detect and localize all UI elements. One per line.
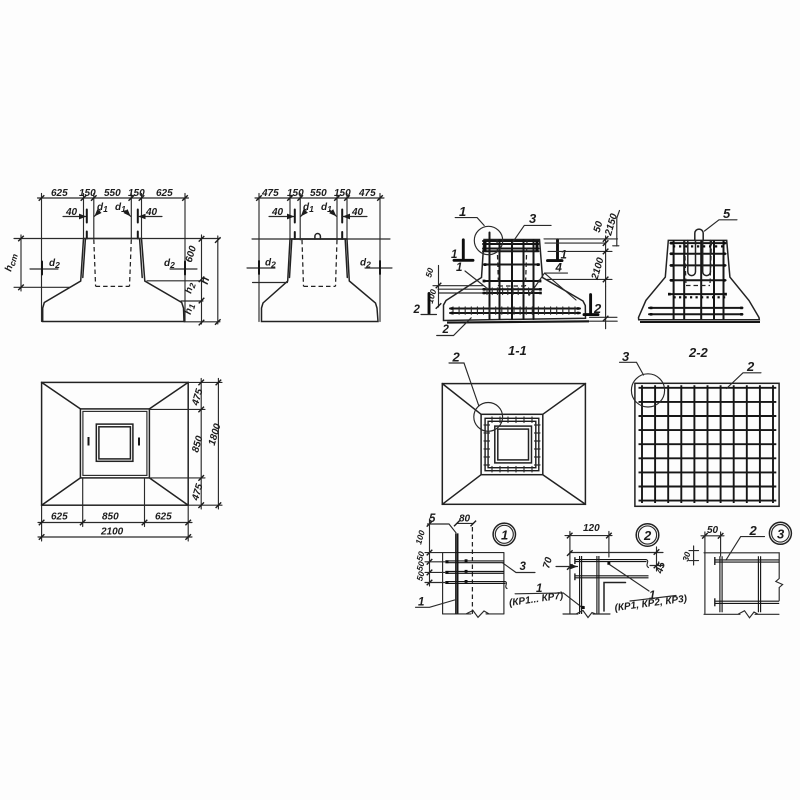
svg-text:550: 550 <box>310 188 327 199</box>
svg-text:2: 2 <box>452 350 461 365</box>
svg-text:50: 50 <box>423 266 435 278</box>
svg-text:4: 4 <box>555 262 563 274</box>
svg-text:1: 1 <box>418 597 424 609</box>
svg-text:625: 625 <box>155 512 172 523</box>
svg-text:d1: d1 <box>321 202 332 214</box>
svg-text:600: 600 <box>184 244 199 263</box>
svg-text:3: 3 <box>777 527 785 542</box>
svg-text:1: 1 <box>451 249 457 261</box>
svg-text:2: 2 <box>442 324 450 336</box>
svg-text:2: 2 <box>413 304 421 316</box>
svg-text:1800: 1800 <box>207 422 224 447</box>
svg-text:475: 475 <box>261 188 279 199</box>
svg-text:hст: hст <box>3 252 20 273</box>
svg-text:150: 150 <box>79 188 96 199</box>
svg-text:625: 625 <box>51 188 68 199</box>
svg-text:1: 1 <box>459 204 466 219</box>
svg-text:5: 5 <box>429 513 436 525</box>
svg-text:5: 5 <box>723 206 731 221</box>
svg-text:d1: d1 <box>115 202 126 214</box>
svg-text:1-1: 1-1 <box>508 343 527 358</box>
svg-text:d2: d2 <box>164 258 175 270</box>
svg-text:850: 850 <box>102 512 119 523</box>
svg-text:150: 150 <box>128 188 145 199</box>
svg-text:3: 3 <box>520 561 527 573</box>
svg-text:100: 100 <box>425 288 439 305</box>
svg-text:475: 475 <box>190 387 206 407</box>
svg-text:d2: d2 <box>49 258 60 270</box>
svg-text:70: 70 <box>541 556 555 570</box>
svg-text:1: 1 <box>501 528 508 543</box>
svg-text:2: 2 <box>749 523 758 538</box>
svg-text:625: 625 <box>156 188 173 199</box>
svg-text:2: 2 <box>593 301 602 316</box>
svg-text:475: 475 <box>358 188 376 199</box>
svg-text:150: 150 <box>287 188 304 199</box>
svg-text:850: 850 <box>190 434 205 453</box>
svg-text:475: 475 <box>190 482 206 502</box>
svg-text:2100: 2100 <box>100 527 124 538</box>
svg-text:50: 50 <box>707 525 719 536</box>
svg-text:3: 3 <box>529 211 537 226</box>
svg-text:2: 2 <box>746 359 755 374</box>
svg-text:40: 40 <box>145 207 158 218</box>
svg-text:550: 550 <box>104 188 121 199</box>
svg-text:120: 120 <box>583 523 600 534</box>
svg-text:625: 625 <box>51 512 68 523</box>
svg-text:50: 50 <box>414 570 426 582</box>
svg-text:150: 150 <box>334 188 351 199</box>
svg-text:2: 2 <box>643 528 652 543</box>
svg-text:2-2: 2-2 <box>688 345 709 360</box>
svg-text:(КР1... КР7): (КР1... КР7) <box>508 590 564 609</box>
svg-text:100: 100 <box>413 529 427 546</box>
svg-text:2100: 2100 <box>590 256 607 282</box>
svg-text:40: 40 <box>351 207 364 218</box>
svg-text:h: h <box>199 276 212 286</box>
svg-text:1: 1 <box>456 262 462 274</box>
svg-text:45: 45 <box>654 561 668 576</box>
